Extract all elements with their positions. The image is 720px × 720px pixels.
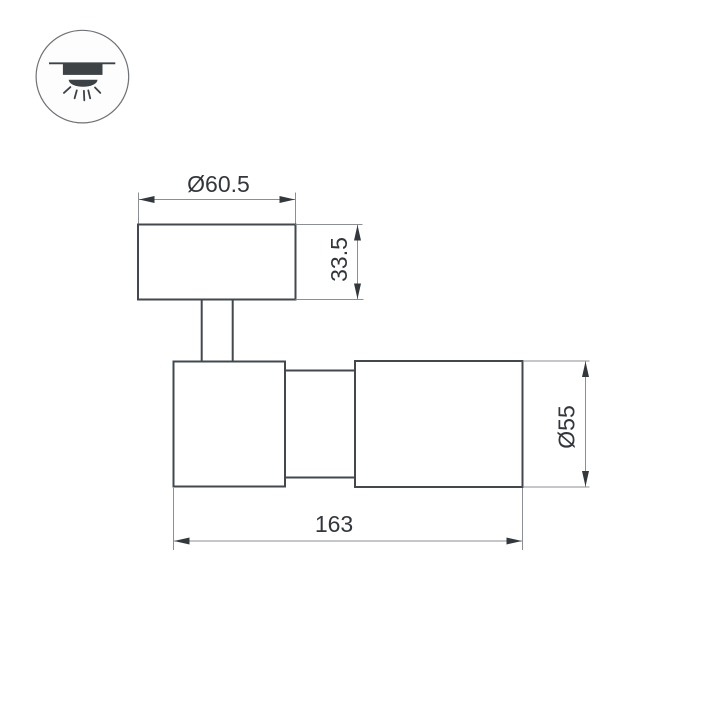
- svg-text:Ø60.5: Ø60.5: [187, 171, 250, 197]
- svg-text:163: 163: [315, 511, 353, 537]
- svg-text:Ø55: Ø55: [554, 405, 580, 448]
- svg-text:33.5: 33.5: [326, 237, 352, 282]
